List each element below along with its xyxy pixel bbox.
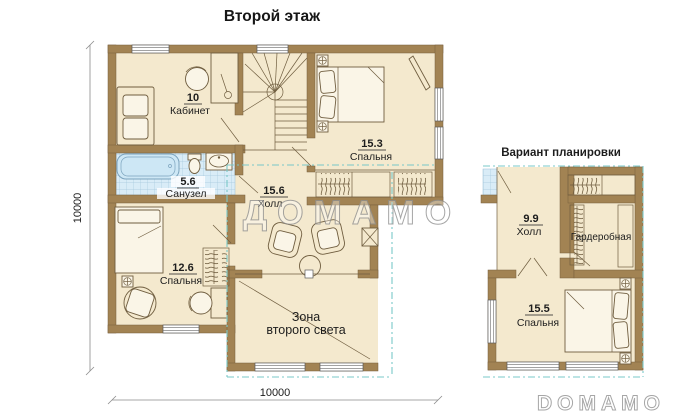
floor-plan-page: Второй этаж	[0, 0, 700, 420]
pillow	[613, 292, 629, 319]
window	[566, 362, 618, 370]
room-bedroom-left-name: Спальня	[160, 275, 202, 287]
dimension-left-label: 10000	[72, 193, 84, 224]
room-office-name: Кабинет	[170, 105, 210, 117]
sconce-symbol	[317, 55, 328, 66]
watermark-center: ДОМАМО	[243, 194, 461, 232]
floor-plan-canvas: Второй этаж	[0, 0, 700, 420]
pillow	[613, 321, 629, 348]
watermark-corner: DOMAMO	[537, 392, 665, 415]
newel-post	[305, 270, 313, 278]
pillow	[319, 95, 336, 118]
variant-wardrobe-name: Гардеробная	[571, 231, 632, 243]
bathtub	[117, 154, 179, 179]
window	[257, 45, 288, 53]
window	[132, 45, 169, 53]
variant-tile-fragment	[483, 169, 497, 195]
variant-bedroom-name: Спальня	[517, 317, 559, 329]
dimension-bottom-label: 10000	[260, 387, 291, 399]
variant-plan-title: Вариант планировки	[501, 147, 621, 159]
room-office-area: 10	[187, 92, 199, 104]
light-zone-label-line2: второго света	[266, 323, 345, 337]
pillow	[319, 70, 336, 93]
window	[435, 127, 443, 159]
window	[488, 300, 496, 343]
office-chair	[186, 68, 209, 91]
chair	[190, 292, 212, 314]
variant-plan: Вариант планировки	[481, 147, 643, 377]
room-bedroom-left-area: 12.6	[172, 262, 193, 274]
page-title: Второй этаж	[224, 8, 321, 25]
variant-hall-name: Холл	[517, 226, 542, 238]
variant-bedroom-area: 15.5	[528, 303, 549, 315]
room-bathroom-area: 5.6	[180, 176, 195, 188]
window	[320, 363, 363, 371]
hangers	[205, 250, 227, 284]
window	[435, 88, 443, 121]
room-bathroom-name: Санузел	[166, 188, 207, 200]
sconce-symbol	[317, 121, 328, 132]
pillow	[118, 210, 160, 223]
window	[255, 363, 305, 371]
wardrobe	[203, 248, 229, 286]
light-zone-label-line1: Зона	[292, 310, 320, 324]
room-bedroom-top-name: Спальня	[350, 151, 392, 163]
sconce-symbol	[122, 276, 133, 287]
window	[163, 325, 199, 333]
sconce-symbol	[620, 278, 631, 289]
variant-bedroom-furniture	[565, 278, 631, 364]
variant-hall-area: 9.9	[523, 213, 538, 225]
sconce-symbol	[620, 353, 631, 364]
window	[507, 362, 559, 370]
room-bedroom-top-area: 15.3	[361, 138, 382, 150]
desk	[211, 288, 227, 318]
